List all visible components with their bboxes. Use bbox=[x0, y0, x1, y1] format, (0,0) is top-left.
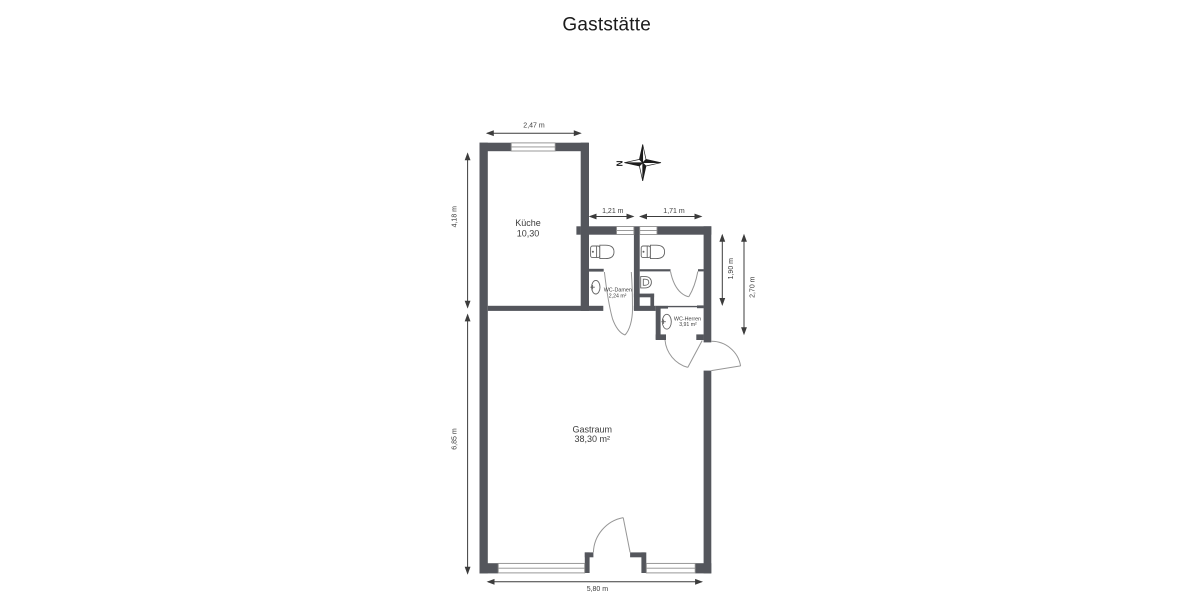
svg-text:1,71 m: 1,71 m bbox=[663, 208, 685, 215]
svg-text:2,47 m: 2,47 m bbox=[523, 122, 545, 129]
svg-text:10,30: 10,30 bbox=[517, 229, 540, 239]
svg-text:4,18 m: 4,18 m bbox=[451, 206, 458, 228]
svg-text:5,80 m: 5,80 m bbox=[587, 586, 609, 593]
svg-text:2,70 m: 2,70 m bbox=[750, 276, 757, 298]
svg-text:6,85 m: 6,85 m bbox=[451, 428, 458, 450]
svg-text:3,91 m²: 3,91 m² bbox=[679, 322, 697, 328]
svg-text:1,90 m: 1,90 m bbox=[728, 258, 735, 280]
svg-text:WC-Damen: WC-Damen bbox=[604, 288, 632, 294]
svg-text:N: N bbox=[616, 160, 625, 166]
svg-text:38,30 m²: 38,30 m² bbox=[575, 434, 611, 444]
svg-text:Gaststätte: Gaststätte bbox=[562, 14, 651, 35]
svg-text:1,21 m: 1,21 m bbox=[602, 208, 624, 215]
svg-text:Gastraum: Gastraum bbox=[573, 425, 613, 435]
svg-text:2,24 m²: 2,24 m² bbox=[609, 294, 627, 300]
svg-text:Küche: Küche bbox=[515, 218, 541, 228]
